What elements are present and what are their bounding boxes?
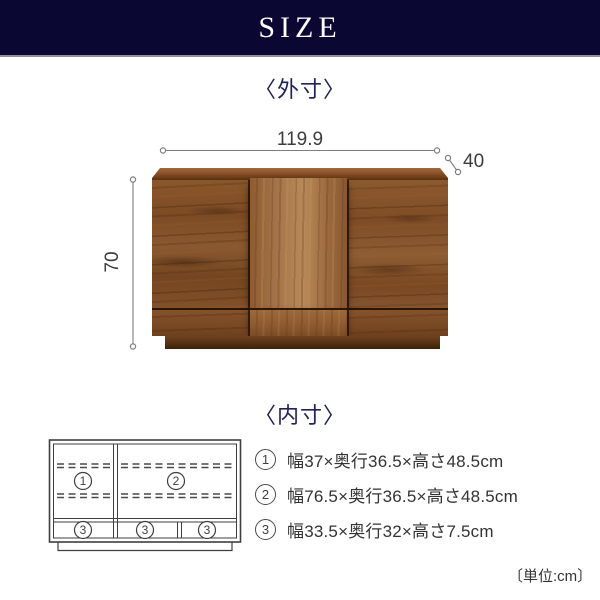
dimension-endpoint	[160, 148, 165, 153]
spec-number-badge: 1	[255, 449, 276, 470]
depth-dimension-line	[450, 160, 457, 170]
spec-text: 幅76.5×奥行36.5×高さ48.5cm	[287, 482, 518, 507]
cabinet-center-drawer	[250, 308, 347, 336]
diagram-plinth	[58, 542, 232, 551]
spec-text: 幅33.5×奥行32×高さ7.5cm	[287, 517, 494, 542]
page: SIZE 〈外寸〉 119.9 40 70 〈内寸〉	[0, 0, 600, 600]
inner-dimensions-heading: 〈内寸〉	[0, 398, 600, 430]
cabinet-plinth	[165, 336, 440, 349]
spec-item: 3 幅33.5×奥行32×高さ7.5cm	[255, 518, 518, 540]
height-dimension-label: 70	[102, 251, 123, 272]
cabinet-right-door	[347, 180, 448, 308]
outer-dimensions-heading: 〈外寸〉	[0, 72, 600, 104]
spec-item: 1 幅37×奥行36.5×高さ48.5cm	[255, 448, 518, 470]
spec-number-badge: 3	[255, 519, 276, 540]
unit-note: 〔単位:cm〕	[508, 565, 592, 586]
drawer2-label: 3	[142, 523, 149, 537]
compartment1-label: 1	[80, 474, 87, 488]
cabinet-photo	[152, 168, 448, 336]
dimension-endpoint	[455, 169, 460, 174]
cabinet-left-door	[152, 180, 250, 308]
header-bar: SIZE	[0, 0, 600, 57]
compartment2-label: 2	[173, 474, 180, 488]
spec-item: 2 幅76.5×奥行36.5×高さ48.5cm	[255, 483, 518, 505]
dimension-endpoint	[130, 177, 135, 182]
cabinet-center-door	[250, 178, 347, 308]
spec-number-badge: 2	[255, 484, 276, 505]
depth-dimension-label: 40	[463, 151, 484, 172]
cabinet-left-drawer	[152, 308, 250, 336]
cabinet-right-drawer	[347, 308, 448, 336]
page-title: SIZE	[258, 11, 341, 45]
spec-list: 1 幅37×奥行36.5×高さ48.5cm 2 幅76.5×奥行36.5×高さ4…	[255, 448, 518, 553]
drawer1-label: 3	[80, 523, 87, 537]
drawer3-label: 3	[204, 523, 211, 537]
width-dimension-label: 119.9	[277, 129, 323, 150]
dimension-endpoint	[445, 155, 450, 160]
dimension-endpoint	[434, 148, 439, 153]
dimension-endpoint	[130, 344, 135, 349]
spec-text: 幅37×奥行36.5×高さ48.5cm	[287, 447, 503, 472]
inner-diagram: 1 2 3 3 3	[48, 438, 244, 556]
